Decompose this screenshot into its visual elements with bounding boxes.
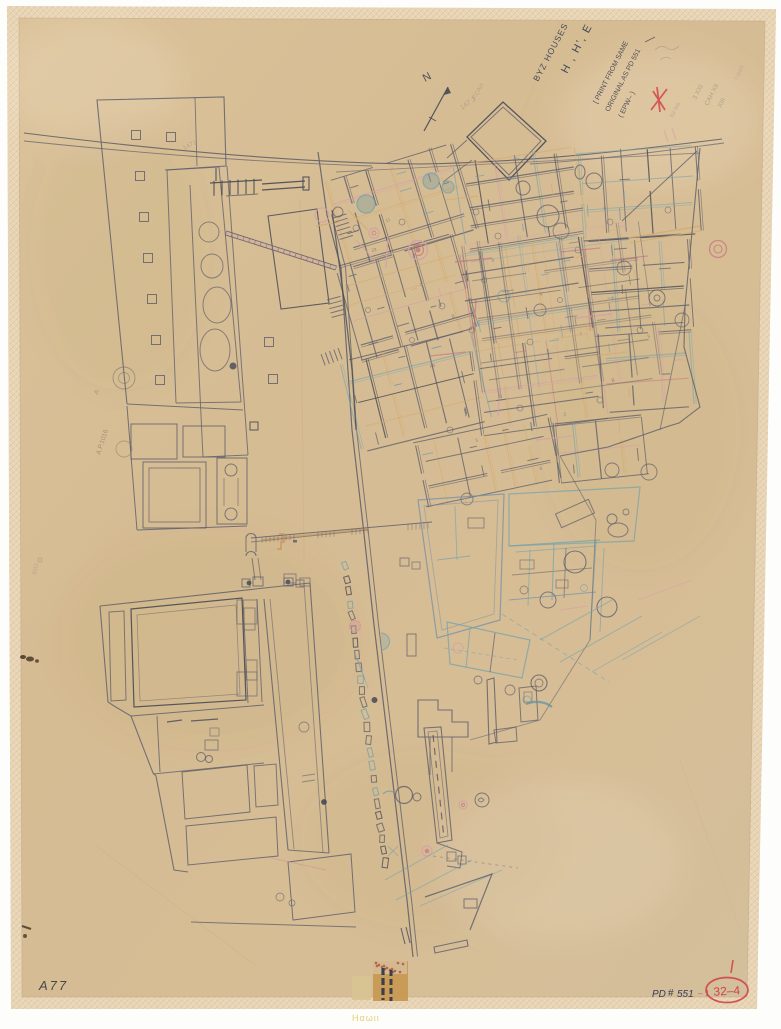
svg-text:32–4: 32–4	[713, 983, 741, 998]
svg-text:PD: PD	[652, 989, 666, 1000]
svg-text:#: #	[668, 988, 674, 999]
svg-text:Hαωιι: Hαωιι	[352, 1013, 380, 1023]
svg-text:A77: A77	[38, 978, 68, 993]
svg-text:551: 551	[677, 989, 694, 1000]
